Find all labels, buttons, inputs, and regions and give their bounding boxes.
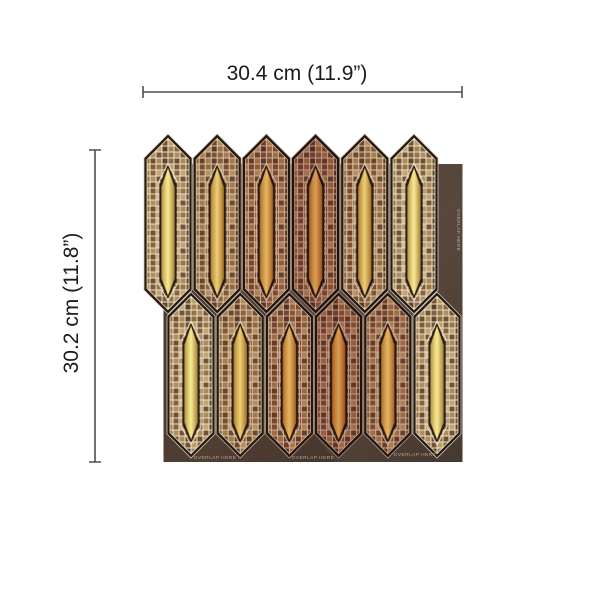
picket-tile [292, 134, 340, 314]
picket-tile [216, 292, 264, 458]
picket-tile [413, 292, 461, 458]
picket-tile [341, 134, 389, 314]
diagram-canvas: OVERLAP HERE OVERLAP HERE OVERLAP HERE O… [0, 0, 600, 600]
picket-tile [242, 134, 290, 314]
width-dimension-line [143, 86, 462, 98]
overlap-here-label-bottom-right: OVERLAP HERE [394, 452, 437, 458]
product-dimension-diagram: OVERLAP HERE OVERLAP HERE OVERLAP HERE O… [0, 0, 600, 600]
picket-tile [167, 292, 215, 458]
picket-tile [315, 292, 363, 458]
width-dimension-label: 30.4 cm (11.9”) [227, 62, 368, 85]
tile-sheet: OVERLAP HERE OVERLAP HERE OVERLAP HERE O… [144, 110, 520, 490]
overlap-here-label-right-edge: OVERLAP HERE [455, 209, 461, 252]
height-dimension-line [89, 150, 101, 462]
picket-tile [265, 292, 313, 458]
picket-tile [390, 134, 438, 314]
picket-tile [364, 292, 412, 458]
overlap-here-label-bottom-center: OVERLAP HERE [292, 455, 335, 461]
height-dimension: 30.2 cm (11.8”) [60, 150, 101, 462]
picket-tile [193, 134, 241, 314]
picket-tile [144, 134, 192, 314]
height-dimension-label: 30.2 cm (11.8”) [60, 233, 83, 374]
overlap-here-label-bottom-left: OVERLAP HERE [194, 455, 237, 461]
width-dimension: 30.4 cm (11.9”) [143, 62, 462, 98]
